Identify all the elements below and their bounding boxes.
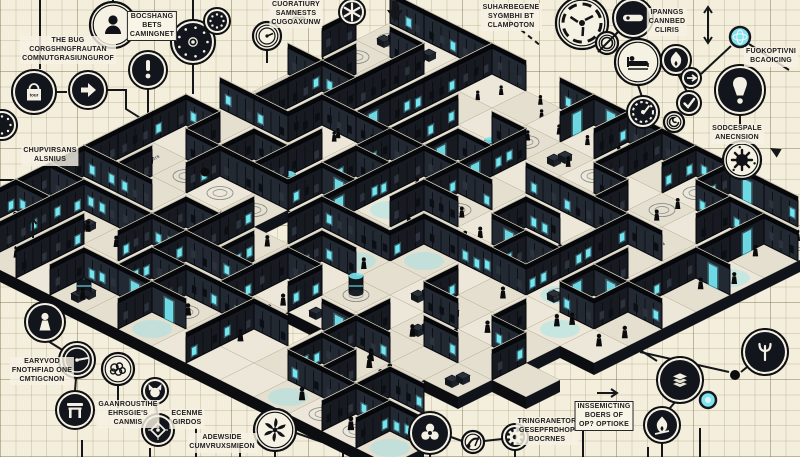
arrow-up-down-icon	[704, 7, 712, 43]
exclamation-icon	[129, 51, 167, 89]
cursor-icon	[770, 145, 783, 158]
arrow-circle-icon	[681, 68, 701, 88]
teal-dot-icon	[700, 392, 716, 408]
dot-icon	[730, 370, 740, 380]
globe-icon	[730, 27, 750, 47]
dot-icon	[201, 168, 210, 177]
gauge-icon	[627, 96, 659, 128]
annotation-label-cuoratiury: CUORATIURY SAMNESTS CUGOAXUNW	[269, 0, 322, 28]
bulb-exclamation-icon	[715, 65, 765, 115]
psi-fork-icon	[742, 329, 788, 375]
annotation-label-tringranetor: TRINGRANETOR GESEPFRDHOP BOCRNES	[516, 417, 579, 445]
papers-icon	[657, 357, 703, 403]
arrow-right-icon	[597, 389, 617, 397]
flame-slash-icon	[644, 407, 680, 443]
hand-icon	[462, 431, 484, 453]
annotation-label-ecenme: ECENME GIRDOS	[169, 409, 204, 429]
slash-lens-icon	[596, 32, 618, 54]
annotation-label-bocshang: BOCSHANG BETS CAMINGNET	[127, 11, 177, 41]
annotation-label-inssemicting: INSSEMICTING BOERS OF OP? OPTIOKE	[575, 401, 634, 431]
scene-canvas: BE RISA4SEC 2 tour	[0, 0, 800, 457]
annotation-label-ipanngs: IPANNGS CANNBED CLIRIS	[647, 8, 687, 36]
brain-icon	[102, 353, 134, 385]
spiral-icon	[664, 112, 684, 132]
virus-icon	[723, 141, 761, 179]
asterisk-gear-icon	[339, 0, 365, 25]
dotted-ring-icon	[204, 8, 230, 34]
annotation-label-earyvod: EARYVOD FNOTHFIAD ONE CMTIGCNON	[10, 357, 74, 385]
annotation-label-suharbegene: SUHARBEGENE SYGMBHI BT CLAMPOTON	[481, 3, 542, 31]
annotation-label-gaanroustihe: GAANROUSTIHE EHRSGIE'S CANMIS	[96, 400, 159, 428]
isometric-maze-illustration: BE RISA4SEC 2 tour THE BUG CORGSHNGFRAUT…	[0, 0, 800, 457]
annotation-label-sodcespale: SODCESPALE ANECNSION	[710, 124, 764, 144]
annotation-label-adewside: ADEWSIDE CUMVRUXSMIEON	[187, 433, 257, 453]
dotted-ring-icon	[0, 110, 17, 140]
annotation-label-chupvirsans: CHUPVIRSANS ALSNIUS	[21, 146, 78, 166]
shopping-bag-icon: tour	[12, 70, 56, 114]
check-icon	[677, 91, 701, 115]
gate-icon	[56, 391, 94, 429]
play-arrow-icon	[69, 71, 107, 109]
annotation-label-the-bug: THE BUG CORGSHNGFRAUTAN COMNUTGRASIUNGUR…	[20, 36, 116, 64]
turbine-icon	[254, 409, 296, 451]
annotation-label-fuokoptivni: FUOKOPTIVNI BCAOICING	[744, 47, 798, 67]
trilobe-icon	[409, 412, 451, 454]
pawn-icon	[25, 302, 65, 342]
svg-text:tour: tour	[30, 93, 39, 98]
bed-icon	[615, 39, 661, 85]
